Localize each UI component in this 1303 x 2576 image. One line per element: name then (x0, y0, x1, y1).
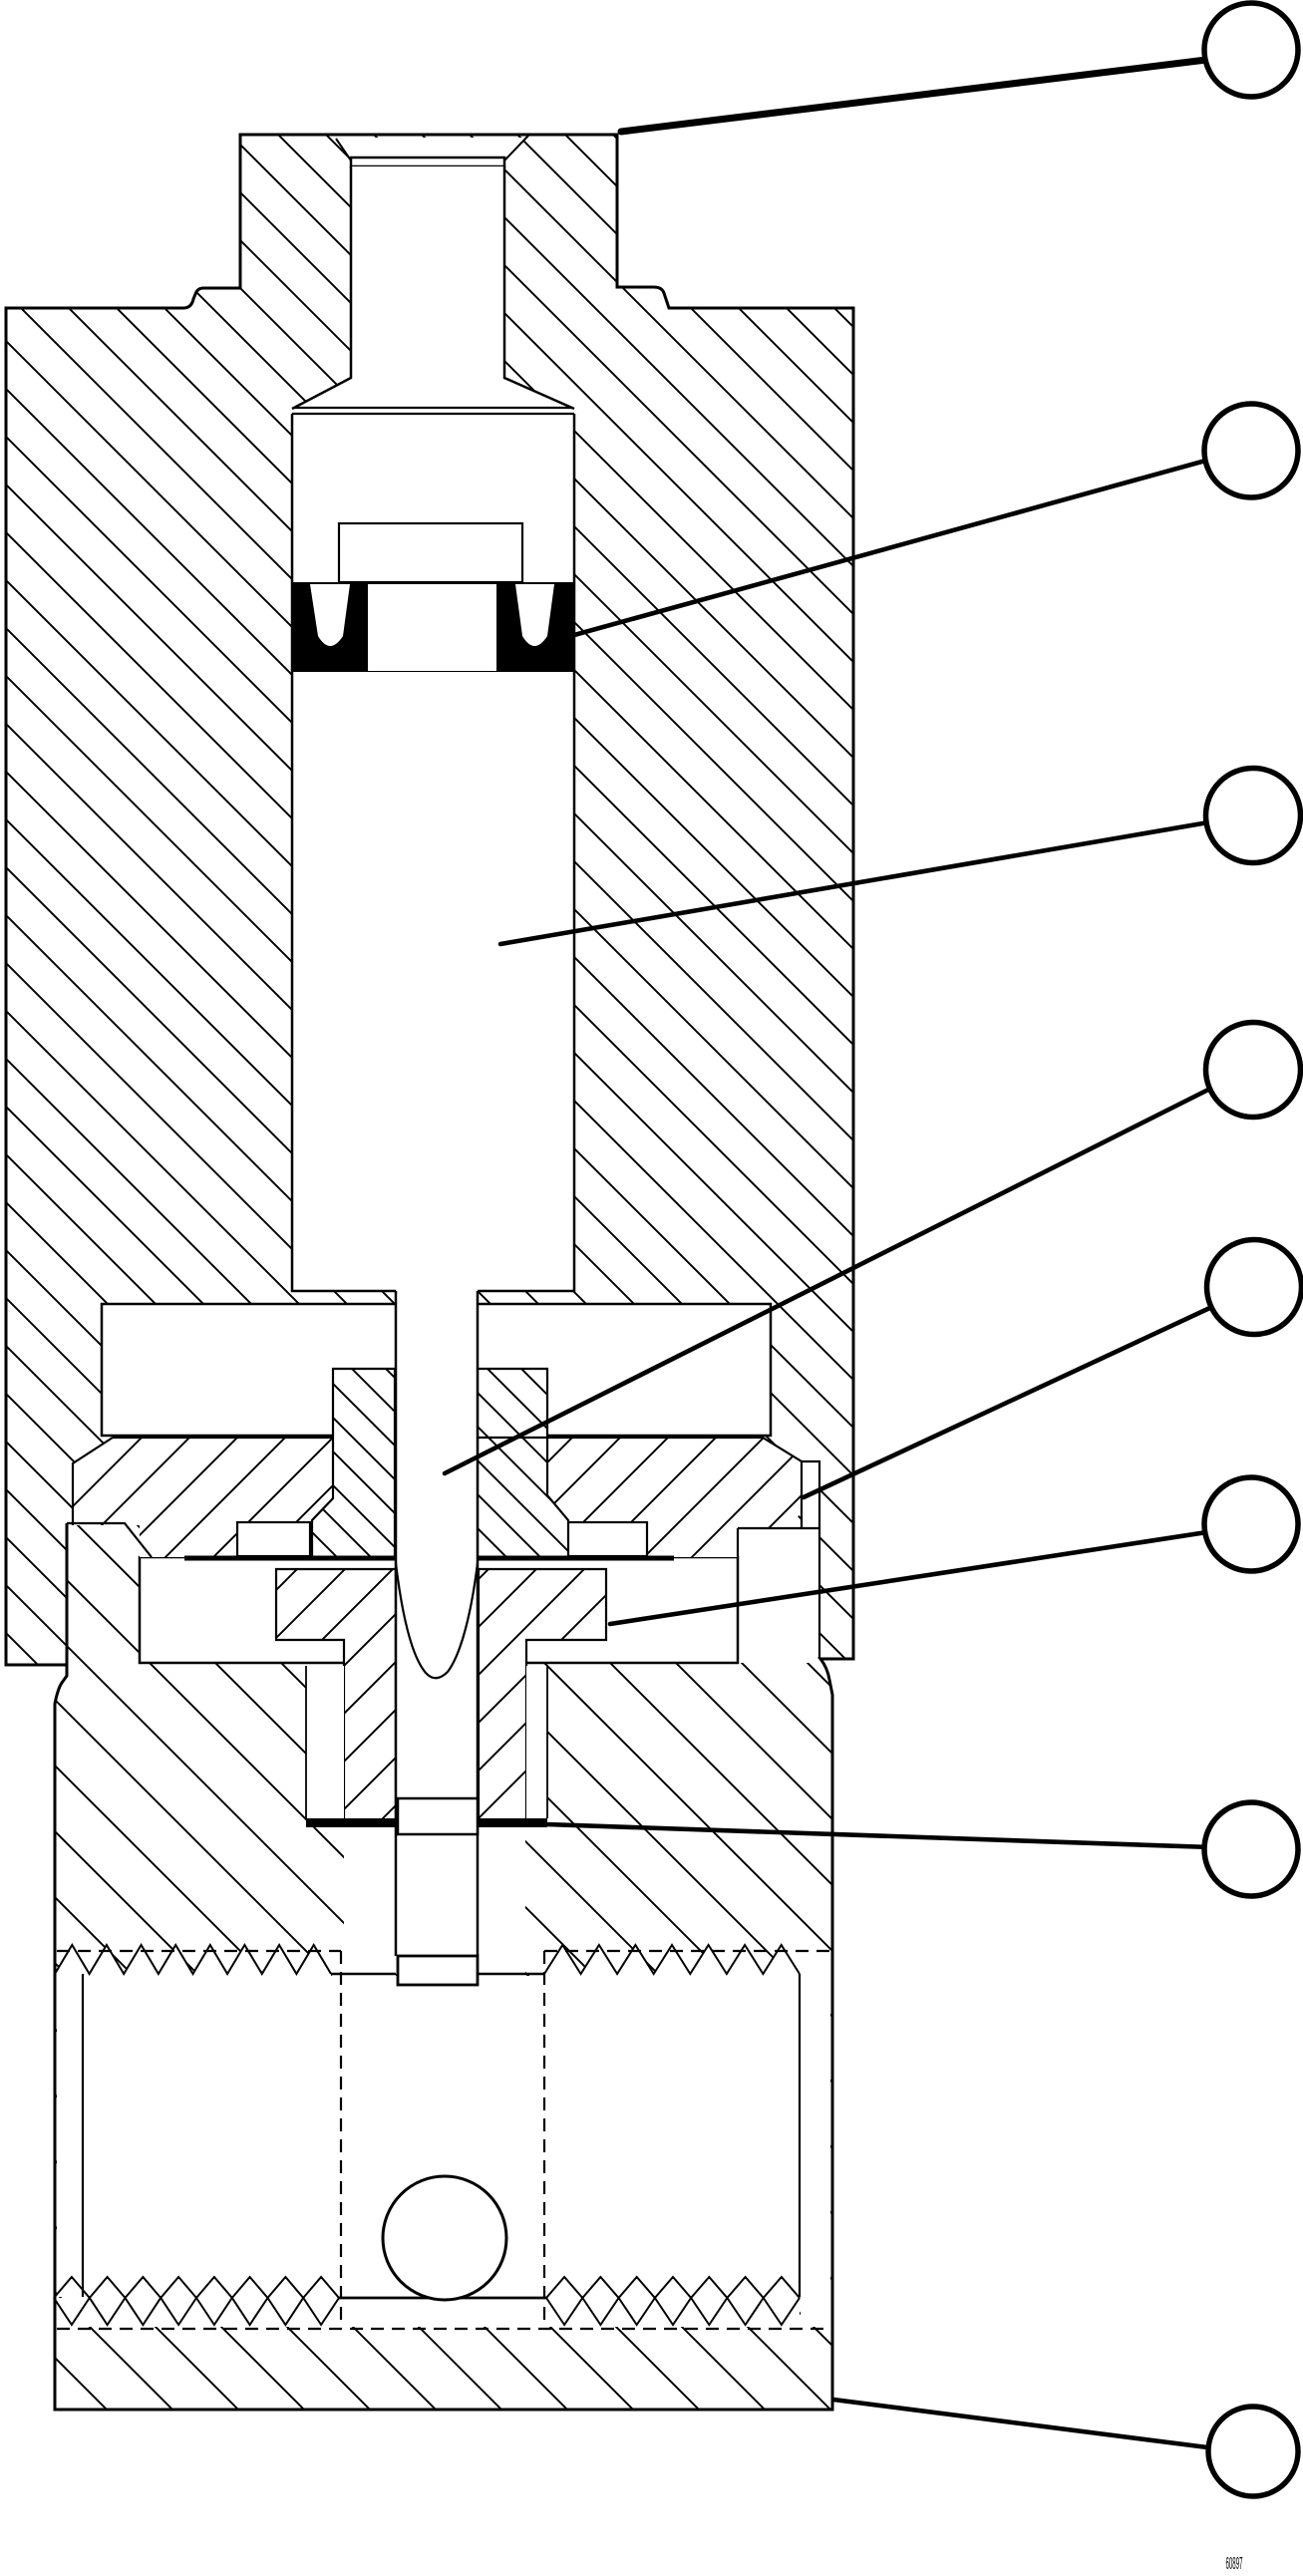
svg-text:60897: 60897 (1225, 2553, 1242, 2573)
